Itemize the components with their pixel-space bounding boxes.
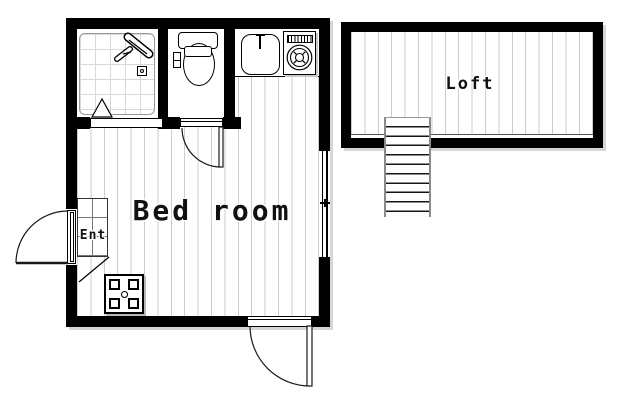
table-corner: [128, 279, 139, 290]
table-center-dot: [121, 291, 128, 298]
loft-label: Loft: [438, 75, 502, 94]
toilet-lid: [184, 46, 212, 57]
table-corner: [109, 298, 120, 309]
bedroom-label: Bed room: [118, 196, 306, 227]
shower-door-triangle-icon: [88, 96, 116, 120]
partition-wall-toilet-kitchen: [224, 29, 235, 118]
table-corner: [128, 298, 139, 309]
table-corner: [109, 279, 120, 290]
bedroom-door-arc-icon: [245, 320, 317, 390]
window-glazing-line: [326, 151, 328, 257]
toilet-door-arc-icon: [178, 124, 228, 172]
entrance-door-arc-icon: [12, 206, 74, 268]
sink-faucet-bar: [256, 34, 265, 36]
sink-faucet-icon: [259, 36, 261, 49]
shower-head-icon: [108, 28, 156, 66]
partition-wall-shower-toilet: [158, 29, 168, 118]
staircase: [384, 117, 431, 217]
low-table: [104, 274, 144, 314]
entrance-label: Ent: [73, 229, 113, 243]
toilet-control-panel: [173, 52, 181, 68]
floor-plan: Bed room Ent Loft: [0, 0, 622, 400]
wall-stub-left: [66, 117, 90, 129]
washing-machine-drum-icon: [284, 42, 315, 73]
shower-threshold: [90, 118, 163, 128]
window-latch-icon-v: [324, 199, 326, 207]
shower-faucet-dot: [140, 69, 144, 73]
